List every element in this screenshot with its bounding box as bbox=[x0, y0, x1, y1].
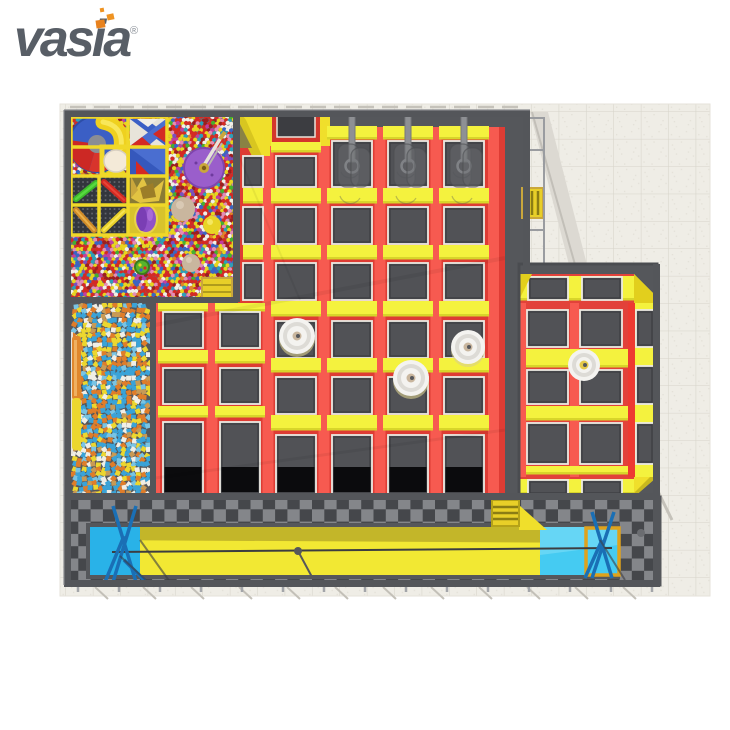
svg-text:®: ® bbox=[130, 25, 138, 37]
